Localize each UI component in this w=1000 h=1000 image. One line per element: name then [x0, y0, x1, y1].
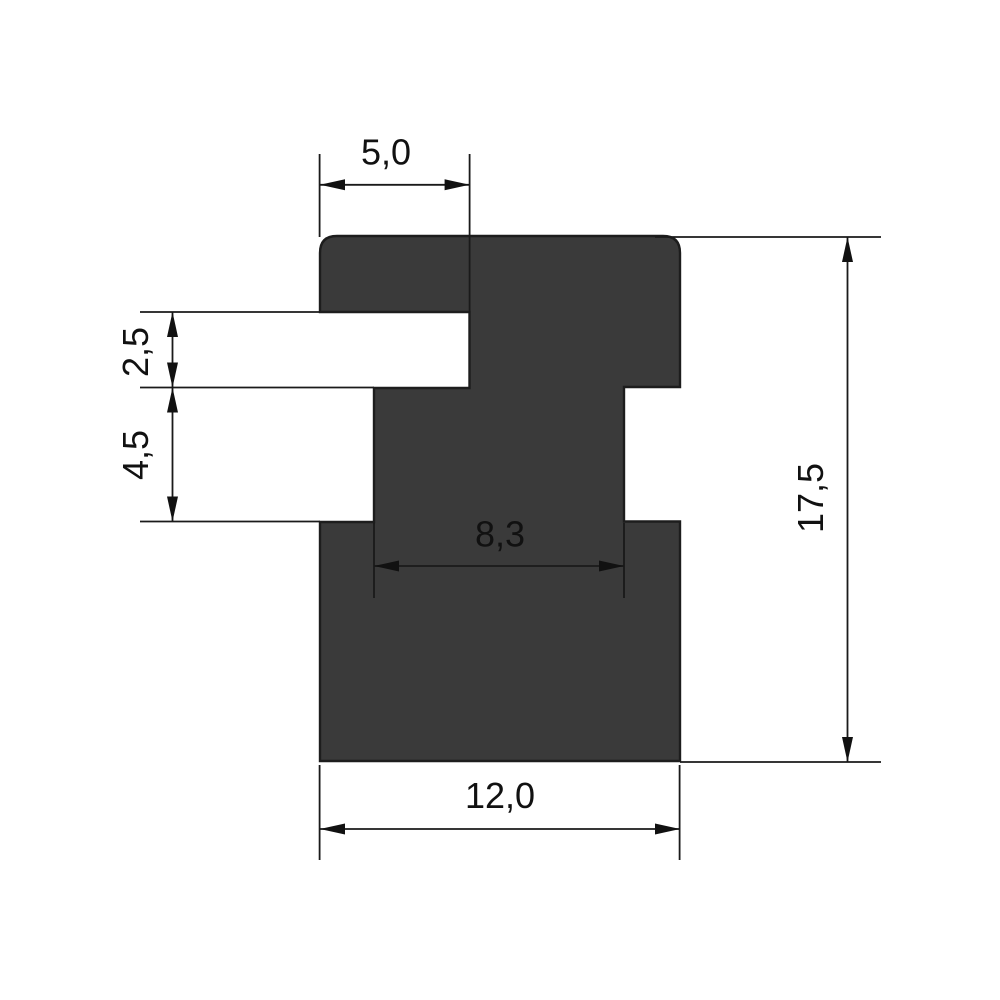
svg-text:17,5: 17,5 [790, 463, 831, 533]
svg-text:4,5: 4,5 [115, 430, 156, 480]
svg-text:8,3: 8,3 [475, 514, 525, 555]
svg-text:12,0: 12,0 [465, 775, 535, 816]
svg-text:5,0: 5,0 [361, 132, 411, 173]
svg-text:2,5: 2,5 [115, 327, 156, 377]
